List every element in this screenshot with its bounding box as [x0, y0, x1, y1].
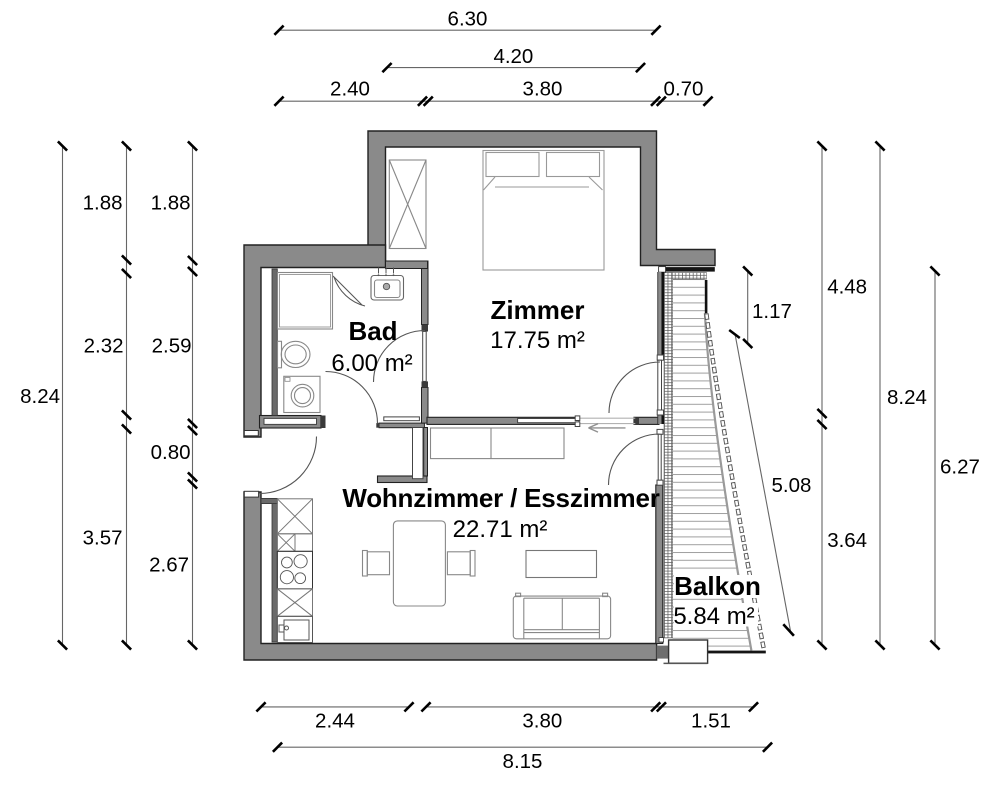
svg-text:1.51: 1.51 [691, 710, 731, 733]
svg-text:8.15: 8.15 [503, 750, 543, 773]
svg-text:Balkon: Balkon [674, 571, 761, 601]
svg-text:8.24: 8.24 [20, 385, 60, 408]
svg-text:4.48: 4.48 [827, 276, 867, 299]
svg-text:3.80: 3.80 [523, 78, 563, 101]
svg-text:4.20: 4.20 [493, 45, 533, 68]
svg-text:1.17: 1.17 [752, 300, 792, 323]
svg-text:22.71 m²: 22.71 m² [453, 516, 548, 543]
svg-text:2.40: 2.40 [330, 78, 370, 101]
svg-text:Zimmer: Zimmer [491, 295, 585, 325]
svg-text:2.67: 2.67 [149, 554, 189, 577]
svg-text:17.75 m²: 17.75 m² [490, 327, 585, 354]
svg-text:1.88: 1.88 [83, 192, 123, 215]
svg-text:0.70: 0.70 [664, 78, 704, 101]
svg-text:3.80: 3.80 [522, 710, 562, 733]
svg-text:0.80: 0.80 [151, 441, 191, 464]
svg-text:3.57: 3.57 [83, 527, 123, 550]
svg-text:2.32: 2.32 [84, 335, 124, 358]
svg-text:6.30: 6.30 [448, 7, 488, 30]
svg-text:3.64: 3.64 [827, 529, 867, 552]
svg-text:5.84 m²: 5.84 m² [673, 603, 754, 630]
svg-text:Wohnzimmer / Esszimmer: Wohnzimmer / Esszimmer [342, 483, 659, 513]
svg-text:2.59: 2.59 [152, 335, 192, 358]
svg-text:6.00 m²: 6.00 m² [331, 350, 412, 377]
svg-text:8.24: 8.24 [887, 386, 927, 409]
svg-text:6.27: 6.27 [940, 456, 980, 479]
svg-text:5.08: 5.08 [772, 474, 812, 497]
svg-text:1.88: 1.88 [151, 192, 191, 215]
svg-text:Bad: Bad [348, 316, 397, 346]
svg-text:2.44: 2.44 [315, 710, 355, 733]
